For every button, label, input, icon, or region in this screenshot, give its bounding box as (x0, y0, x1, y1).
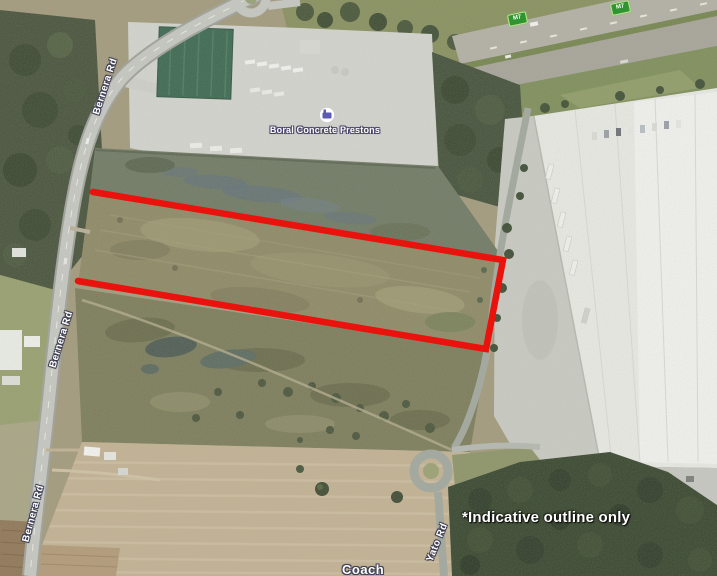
satellite-map: Bernera Rd Bernera Rd Bernera Rd Yato Rd… (0, 0, 717, 576)
business-poi-marker-icon (320, 108, 335, 123)
poi-label-boral-concrete-prestons: Boral Concrete Prestons (263, 125, 387, 135)
road-label-partial: Coach (342, 562, 384, 576)
indicative-outline-annotation: *Indicative outline only (462, 509, 630, 526)
